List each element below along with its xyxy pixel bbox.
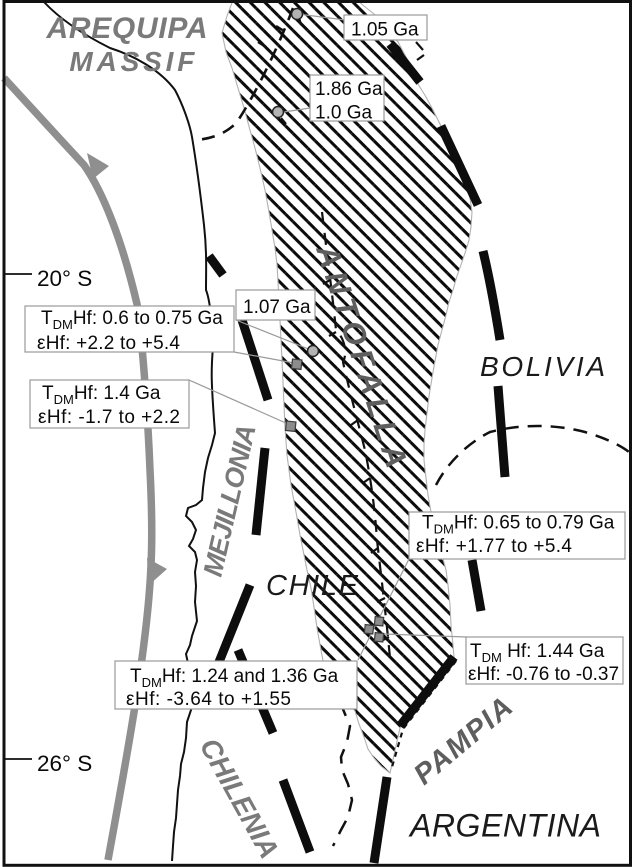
- svg-text:1.07 Ga: 1.07 Ga: [243, 297, 311, 318]
- svg-text:1.0 Ga: 1.0 Ga: [315, 103, 372, 124]
- svg-text:20° S: 20° S: [37, 266, 92, 291]
- svg-text:CHILE: CHILE: [266, 570, 359, 602]
- svg-text:εHf: -3.64 to +1.55: εHf: -3.64 to +1.55: [126, 689, 291, 710]
- svg-text:εHf: +2.2 to +5.4: εHf: +2.2 to +5.4: [37, 333, 180, 354]
- svg-text:AREQUIPA: AREQUIPA: [46, 12, 208, 45]
- svg-text:MASSIF: MASSIF: [69, 46, 195, 77]
- svg-text:εHf: +1.77 to +5.4: εHf: +1.77 to +5.4: [416, 536, 572, 557]
- svg-text:εHf: -1.7 to +2.2: εHf: -1.7 to +2.2: [38, 407, 180, 428]
- svg-text:26° S: 26° S: [37, 751, 92, 776]
- svg-text:ARGENTINA: ARGENTINA: [408, 808, 601, 844]
- svg-text:TDMHf: 1.24 and 1.36 Ga: TDMHf: 1.24 and 1.36 Ga: [130, 666, 339, 690]
- svg-text:1.05 Ga: 1.05 Ga: [351, 20, 419, 41]
- svg-text:εHf: -0.76 to -0.37: εHf: -0.76 to -0.37: [468, 664, 619, 685]
- svg-text:1.86 Ga: 1.86 Ga: [315, 79, 383, 100]
